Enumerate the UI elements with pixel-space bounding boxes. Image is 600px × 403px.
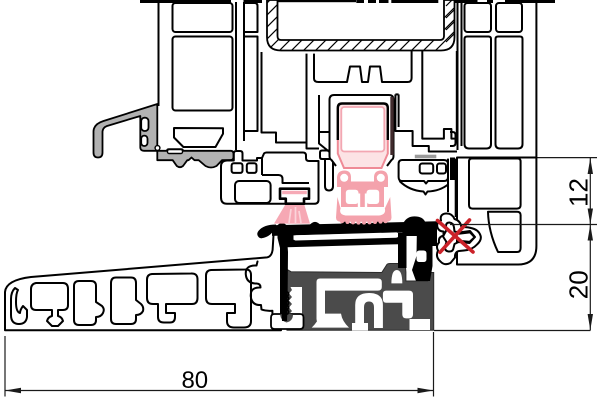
svg-text:20: 20 <box>564 270 594 299</box>
svg-text:80: 80 <box>181 367 208 394</box>
svg-text:12: 12 <box>564 178 594 207</box>
